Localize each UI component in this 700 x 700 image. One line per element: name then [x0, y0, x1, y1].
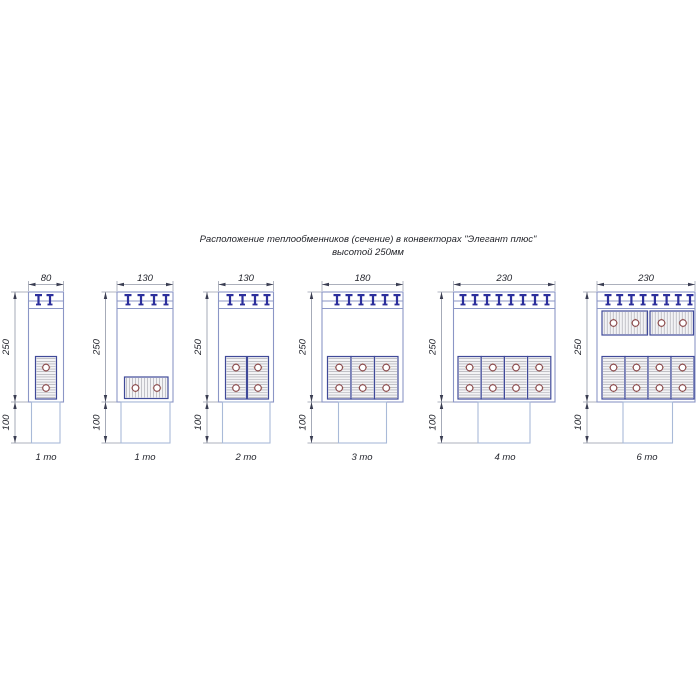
pipe-circle: [656, 364, 663, 371]
convector-pedestal: [32, 402, 61, 443]
height-dimension-label: 250: [1, 338, 12, 356]
dimension-arrow: [440, 395, 443, 402]
heat-exchanger-block: [351, 357, 375, 400]
pipe-circle: [383, 364, 390, 371]
pipe-circle: [679, 364, 686, 371]
dimension-arrow: [205, 395, 208, 402]
heat-exchanger-block: [125, 377, 169, 399]
base-height-dimension-label: 100: [298, 414, 309, 431]
diagram-label: 4 то: [494, 452, 515, 463]
pipe-circle: [536, 364, 543, 371]
pipe-circle: [610, 385, 617, 392]
pipe-circle: [43, 385, 50, 392]
pipe-circle: [255, 385, 262, 392]
pipe-circle: [536, 385, 543, 392]
heat-exchanger-block: [36, 357, 57, 400]
base-height-dimension-label: 100: [428, 414, 439, 431]
dimension-arrow: [166, 283, 173, 286]
heat-exchanger-block: [671, 357, 694, 400]
dimension-arrow: [57, 283, 64, 286]
heat-exchanger-block: [248, 357, 269, 400]
height-dimension-label: 250: [298, 338, 309, 356]
dimension-arrow: [205, 402, 208, 409]
dimension-arrow: [310, 395, 313, 402]
dimension-arrow: [454, 283, 461, 286]
dimension-arrow: [688, 283, 695, 286]
convector-pedestal: [478, 402, 530, 443]
dimension-arrow: [396, 283, 403, 286]
convector-pedestal: [121, 402, 170, 443]
diagram-label: 6 то: [636, 452, 657, 463]
convector-pedestal: [339, 402, 387, 443]
height-dimension-label: 250: [573, 338, 584, 356]
width-dimension-label: 180: [355, 273, 372, 284]
dimension-arrow: [310, 402, 313, 409]
convector-diagram: 2302501006 то: [573, 273, 695, 463]
convector-diagrams-svg: 802501001 то1302501001 то1302501002 то18…: [0, 0, 700, 700]
pipe-circle: [679, 385, 686, 392]
dimension-arrow: [267, 283, 274, 286]
dimension-arrow: [13, 402, 16, 409]
heat-exchanger-block: [625, 357, 648, 400]
dimension-arrow: [13, 395, 16, 402]
pipe-circle: [633, 364, 640, 371]
dimension-arrow: [29, 283, 36, 286]
convector-diagram: 1302501002 то: [193, 273, 274, 463]
dimension-arrow: [310, 292, 313, 299]
base-height-dimension-label: 100: [92, 414, 103, 431]
dimension-arrow: [104, 402, 107, 409]
width-dimension-label: 230: [495, 273, 513, 284]
convector-pedestal: [623, 402, 673, 443]
pipe-circle: [633, 385, 640, 392]
width-dimension-label: 80: [41, 273, 52, 284]
diagram-label: 2 то: [234, 452, 256, 463]
heat-exchanger-block: [504, 357, 527, 400]
heat-exchanger-block: [481, 357, 504, 400]
pipe-circle: [680, 320, 687, 327]
heat-exchanger-block: [375, 357, 399, 400]
pipe-circle: [132, 385, 139, 392]
diagram-label: 3 то: [351, 452, 372, 463]
heat-exchanger-block: [226, 357, 247, 400]
base-height-dimension-label: 100: [1, 414, 12, 431]
dimension-arrow: [104, 395, 107, 402]
heat-exchanger-fin-pack: [125, 377, 169, 399]
dimension-arrow: [310, 436, 313, 443]
pipe-circle: [255, 364, 262, 371]
width-dimension-label: 130: [238, 273, 255, 284]
dimension-arrow: [117, 283, 124, 286]
dimension-arrow: [585, 402, 588, 409]
pipe-circle: [610, 364, 617, 371]
dimension-arrow: [440, 292, 443, 299]
pipe-circle: [154, 385, 161, 392]
heat-exchanger-block: [458, 357, 481, 400]
dimension-arrow: [440, 436, 443, 443]
pipe-circle: [336, 364, 343, 371]
convector-diagram: 1802501003 то: [298, 273, 404, 463]
dimension-arrow: [13, 292, 16, 299]
width-dimension-label: 230: [637, 273, 655, 284]
dimension-arrow: [597, 283, 604, 286]
pipe-circle: [233, 385, 240, 392]
pipe-circle: [490, 385, 497, 392]
convector-diagram: 802501001 то: [1, 273, 64, 463]
height-dimension-label: 250: [428, 338, 439, 356]
height-dimension-label: 250: [92, 338, 103, 356]
heat-exchanger-block: [328, 357, 352, 400]
pipe-circle: [610, 320, 617, 327]
convector-diagram: 1302501001 то: [92, 273, 174, 463]
heat-exchanger-fin-pack: [602, 311, 648, 335]
pipe-circle: [43, 364, 50, 371]
dimension-arrow: [205, 292, 208, 299]
pipe-circle: [383, 385, 390, 392]
dimension-arrow: [585, 395, 588, 402]
dimension-arrow: [205, 436, 208, 443]
pipe-circle: [490, 364, 497, 371]
heat-exchanger-block: [602, 311, 648, 335]
dimension-arrow: [104, 292, 107, 299]
pipe-circle: [513, 364, 520, 371]
heat-exchanger-block: [650, 311, 694, 335]
width-dimension-label: 130: [137, 273, 154, 284]
diagram-label: 1 то: [134, 452, 155, 463]
dimension-arrow: [585, 292, 588, 299]
dimension-arrow: [13, 436, 16, 443]
base-height-dimension-label: 100: [193, 414, 204, 431]
pipe-circle: [233, 364, 240, 371]
height-dimension-label: 250: [193, 338, 204, 356]
heat-exchanger-block: [602, 357, 625, 400]
dimension-arrow: [322, 283, 329, 286]
pipe-circle: [466, 364, 473, 371]
diagram-label: 1 то: [35, 452, 56, 463]
convector-pedestal: [223, 402, 271, 443]
pipe-circle: [336, 385, 343, 392]
pipe-circle: [658, 320, 665, 327]
drawing-canvas: Расположение теплообменников (сечение) в…: [0, 0, 700, 700]
dimension-arrow: [548, 283, 555, 286]
pipe-circle: [632, 320, 639, 327]
dimension-arrow: [440, 402, 443, 409]
heat-exchanger-block: [528, 357, 551, 400]
dimension-arrow: [219, 283, 226, 286]
pipe-circle: [656, 385, 663, 392]
pipe-circle: [359, 364, 366, 371]
convector-diagram: 2302501004 то: [428, 273, 556, 463]
dimension-arrow: [104, 436, 107, 443]
dimension-arrow: [585, 436, 588, 443]
pipe-circle: [513, 385, 520, 392]
base-height-dimension-label: 100: [573, 414, 584, 431]
pipe-circle: [359, 385, 366, 392]
pipe-circle: [466, 385, 473, 392]
heat-exchanger-block: [648, 357, 671, 400]
